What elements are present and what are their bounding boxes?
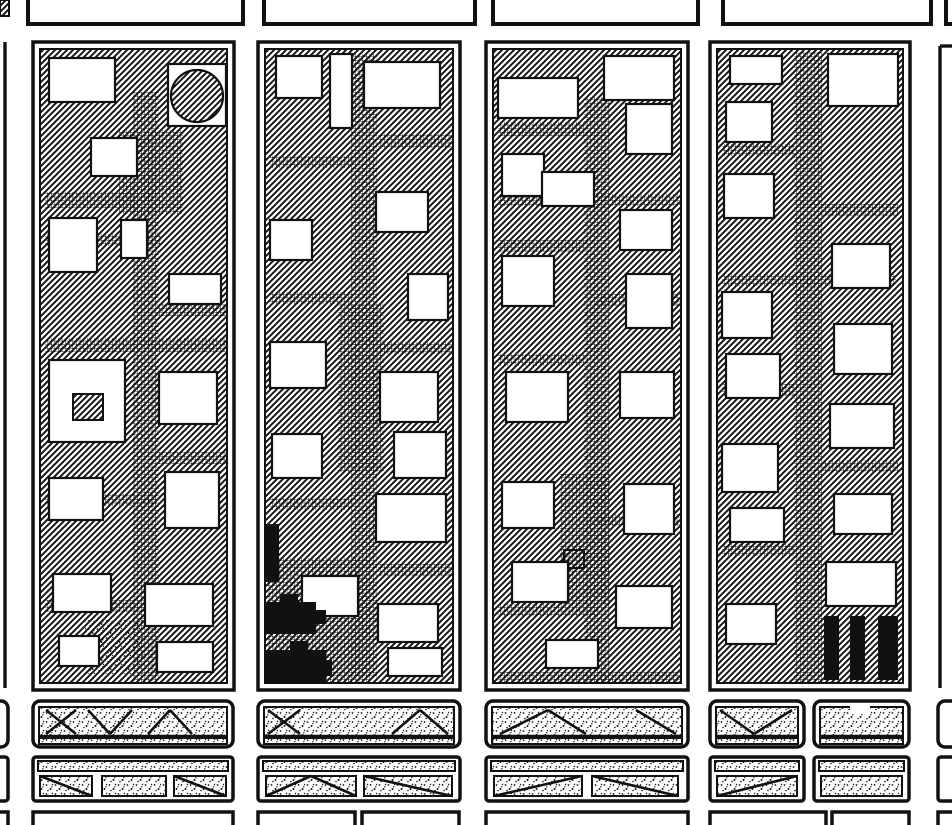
courtyard <box>408 274 448 320</box>
black-building <box>878 616 898 680</box>
stipple-panel <box>819 761 904 771</box>
paved-crosshatch <box>378 134 452 148</box>
stipple-panel <box>716 738 798 744</box>
stipple-panel <box>39 738 227 744</box>
panel-outline <box>0 757 8 801</box>
black-building <box>824 616 839 680</box>
courtyard <box>121 220 147 258</box>
courtyard <box>722 292 772 338</box>
courtyard <box>330 54 352 128</box>
courtyard <box>726 354 780 398</box>
courtyard <box>49 478 103 520</box>
city-block-2-content <box>265 49 453 684</box>
city-block-3 <box>486 42 688 690</box>
panel-outline <box>258 812 355 825</box>
paved-crosshatch <box>270 292 352 304</box>
panel-outline <box>723 0 931 24</box>
panel-outline <box>0 812 8 825</box>
courtyard <box>59 636 99 666</box>
paved-crosshatch <box>722 544 794 556</box>
stipple-panel <box>491 761 683 771</box>
stipple-panel <box>821 776 902 796</box>
courtyard <box>498 78 578 118</box>
paved-crosshatch <box>270 156 354 168</box>
black-building <box>266 524 279 582</box>
paved-crosshatch <box>498 672 680 683</box>
courtyard <box>828 54 898 106</box>
black-building <box>266 650 326 684</box>
courtyard <box>826 562 896 606</box>
stipple-panel <box>39 707 227 736</box>
panel-outline <box>946 0 952 24</box>
stipple-panel <box>266 776 356 796</box>
courtyard <box>159 372 217 424</box>
courtyard <box>620 372 674 418</box>
black-building <box>266 602 316 634</box>
paved-crosshatch <box>45 192 135 208</box>
paved-crosshatch <box>822 204 898 216</box>
courtyard <box>730 508 784 542</box>
paved-crosshatch <box>498 122 584 136</box>
courtyard <box>502 482 554 528</box>
courtyard <box>834 324 892 374</box>
panel-outline <box>832 812 909 825</box>
panel-outline <box>938 757 952 801</box>
black-building <box>314 610 326 624</box>
map-svg <box>0 0 952 825</box>
round-building <box>171 70 223 122</box>
paved-crosshatch <box>794 52 822 684</box>
panel-outline <box>938 701 952 747</box>
courtyard <box>726 102 772 142</box>
stipple-panel <box>492 738 682 744</box>
stipple-panel <box>264 707 454 736</box>
courtyard <box>722 444 778 492</box>
courtyard <box>834 494 892 534</box>
courtyard <box>270 342 326 388</box>
courtyard <box>53 574 111 612</box>
white-gap <box>850 705 870 714</box>
paved-crosshatch <box>498 354 584 366</box>
black-building <box>280 594 298 602</box>
north-block-outlines <box>0 0 952 24</box>
stipple-panel <box>715 761 799 771</box>
paved-crosshatch <box>338 304 384 472</box>
black-building <box>290 641 308 651</box>
building-hatch <box>73 394 103 420</box>
courtyard <box>376 192 428 232</box>
courtyard <box>832 244 890 288</box>
courtyard <box>270 220 312 260</box>
black-building <box>324 660 332 676</box>
courtyard <box>546 640 598 668</box>
courtyard <box>506 372 568 422</box>
courtyard <box>502 256 554 306</box>
courtyard <box>364 62 440 108</box>
courtyard <box>512 562 568 602</box>
south-yard-bars <box>0 701 952 825</box>
courtyard <box>49 58 115 102</box>
city-block-4-content <box>717 49 903 684</box>
courtyard <box>165 472 219 528</box>
courtyard <box>830 404 894 448</box>
courtyard <box>272 434 322 478</box>
courtyard <box>626 104 672 154</box>
stipple-panel <box>102 776 166 796</box>
courtyard <box>620 210 672 250</box>
courtyard <box>624 484 674 534</box>
paved-crosshatch <box>722 144 794 156</box>
courtyard <box>502 154 544 196</box>
paved-crosshatch <box>270 498 352 510</box>
courtyard <box>380 372 438 422</box>
courtyard <box>730 56 782 84</box>
paved-crosshatch <box>378 342 452 354</box>
city-block-1-content <box>40 49 227 684</box>
courtyard <box>49 218 97 272</box>
stipple-panel <box>38 761 228 771</box>
city-block-2 <box>258 42 460 690</box>
courtyard <box>394 432 446 478</box>
courtyard <box>157 642 213 672</box>
paved-crosshatch <box>498 240 584 252</box>
panel-outline <box>264 0 475 24</box>
city-block-1 <box>33 42 234 690</box>
city-block-4 <box>710 42 910 690</box>
paved-crosshatch <box>498 604 598 616</box>
stipple-panel <box>820 738 903 744</box>
panel-outline <box>486 812 688 825</box>
courtyard <box>376 494 446 542</box>
courtyard <box>724 174 774 218</box>
building-hatch <box>0 0 9 16</box>
panel-outline <box>493 0 698 24</box>
courtyard <box>378 604 438 642</box>
black-building <box>850 616 865 680</box>
paved-crosshatch <box>822 460 898 472</box>
paved-crosshatch <box>159 304 227 316</box>
stipple-panel <box>264 738 454 744</box>
panel-outline <box>362 812 459 825</box>
paved-crosshatch <box>159 452 227 464</box>
courtyard <box>388 648 442 676</box>
courtyard <box>542 172 594 206</box>
panel-outline <box>33 812 233 825</box>
panel-outline <box>0 701 8 747</box>
paved-crosshatch <box>378 564 452 576</box>
courtyard <box>145 584 213 626</box>
courtyard <box>604 56 674 100</box>
courtyard <box>169 274 221 304</box>
city-block-3-content <box>493 49 681 684</box>
courtyard <box>726 604 776 644</box>
panel-outline <box>710 812 826 825</box>
courtyard <box>626 274 672 328</box>
panel-outline <box>938 812 952 825</box>
stipple-panel <box>263 761 455 771</box>
courtyard <box>276 56 322 98</box>
panel-outline <box>28 0 243 24</box>
paved-crosshatch <box>45 338 227 352</box>
courtyard <box>91 138 137 176</box>
courtyard <box>616 586 672 628</box>
figure-ground-map <box>0 0 952 825</box>
